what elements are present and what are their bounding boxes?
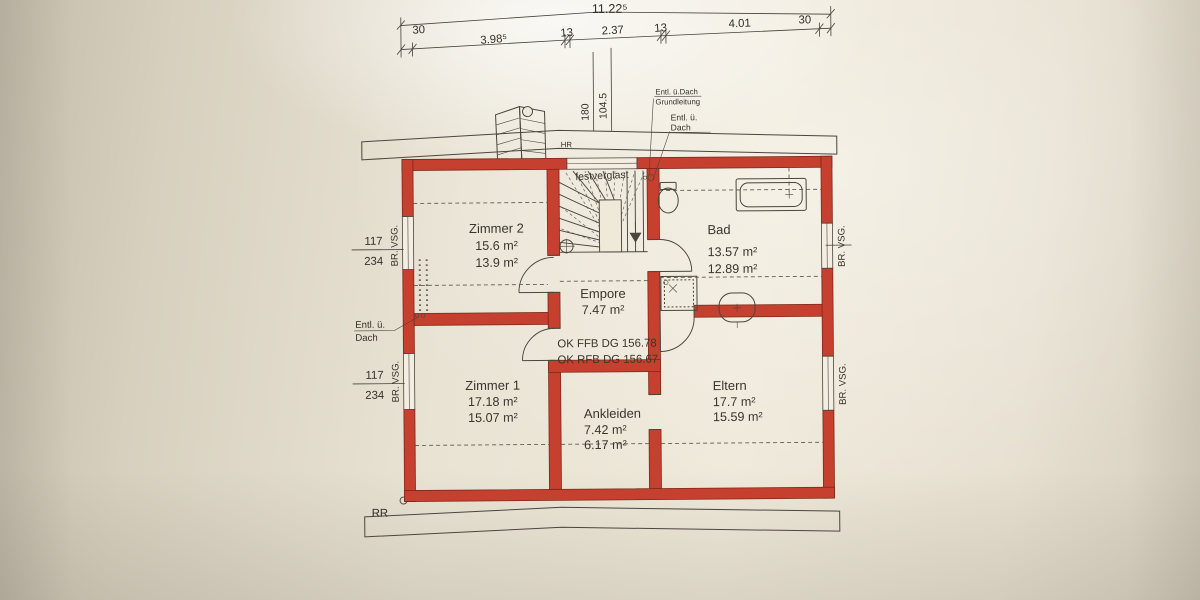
door-bad [660,239,692,271]
room-area: 17.7 m² [713,395,756,409]
win2-brvsg: BR. VSG. [390,361,401,403]
dim-seg-30-left: 30 [412,24,425,37]
level-rfb: OK RFB DG 156.67 [557,354,658,367]
room-ankleiden: Ankleiden 7.42 m² 6.17 m² [584,406,641,452]
dim-vertical-180: 180 [580,103,591,121]
room-area: 7.42 m² [584,423,627,437]
dim-seg-13a: 13 [560,27,573,40]
window-zimmer1 [403,353,414,409]
room-area: 17.18 m² [468,395,518,409]
entl-dach-top-line1: Entl. ü. [671,112,698,122]
dim-seg-13b: 13 [654,22,667,35]
room-name: Empore [580,286,626,301]
festverglast-label: festverglast [575,170,629,183]
level-ffb: OK FFB DG 156.78 [557,338,656,351]
hr-label: HR [561,140,573,149]
room-name: Eltern [713,378,747,393]
entl-dach-left-line2: Dach [355,333,377,344]
room-area: 6.17 m² [584,438,627,452]
dim-vertical-1045: 104.5 [598,93,609,119]
dim-seg-398: 3.98⁵ [480,33,508,47]
room-eltern: Eltern 17.7 m² 15.59 m² [713,378,763,424]
room-area: 13.57 m² [708,245,758,259]
rainwater-downpipe: RR [372,497,408,520]
win1-234: 234 [364,256,383,268]
rr-label: RR [372,508,389,520]
window-eltern [822,356,833,410]
dim-seg-30-right: 30 [798,14,811,26]
win2-234: 234 [365,390,384,402]
entl-grundleitung-line2: Grundleitung [655,97,700,106]
dim-seg-237: 2.37 [601,24,624,37]
door-zimmer1 [522,328,554,360]
stair-direction-arrow-icon [629,222,641,243]
room-name: Zimmer 1 [465,378,520,393]
win1-brvsg: BR. VSG. [389,225,400,267]
stair-newel [599,200,621,252]
roof-eaves-hatch-top [362,128,837,160]
win2-117: 117 [365,370,383,382]
dim-overall: 11.22⁵ [592,2,628,16]
room-empore: Empore 7.47 m² [580,286,626,317]
room-name: Bad [707,222,730,237]
room-area: 15.6 m² [475,239,518,253]
floor-plan-photo: 11.22⁵ 30 3.98⁵ 13 2.37 13 4.01 30 180 1… [0,0,1200,600]
window-zimmer2 [402,216,413,269]
door-jambs [548,239,695,430]
entl-dach-top-line2: Dach [671,122,691,132]
win1-117: 117 [364,236,382,248]
room-area: 7.47 m² [582,303,625,317]
shower-icon [661,276,697,310]
door-zimmer2 [519,257,554,292]
entl-dach-left-line1: Entl. ü. [355,320,385,331]
win4-brvsg: BR. VSG. [838,363,849,405]
stair-post-icon [559,239,575,254]
door-eltern [660,317,694,351]
room-area: 15.07 m² [468,411,518,425]
staircase: festverglast [558,170,648,254]
dimension-chain: 11.22⁵ 30 3.98⁵ 13 2.37 13 4.01 30 180 1… [397,0,836,132]
window-festverglast [567,158,637,170]
room-zimmer1: Zimmer 1 17.18 m² 15.07 m² [465,378,520,425]
room-area: 12.89 m² [708,262,758,276]
roof-eaves-hatch-bottom [365,505,840,537]
window-bad [821,223,832,268]
room-zimmer2: Zimmer 2 15.6 m² 13.9 m² [469,221,524,270]
dim-seg-401: 4.01 [728,17,751,30]
level-labels: OK FFB DG 156.78 OK RFB DG 156.67 [557,338,658,367]
room-labels: Zimmer 2 15.6 m² 13.9 m² Bad 13.57 m² 12… [464,219,763,453]
room-area: 13.9 m² [475,256,518,270]
room-name: Ankleiden [584,406,641,421]
room-bad: Bad 13.57 m² 12.89 m² [707,222,757,276]
floor-plan-drawing: 11.22⁵ 30 3.98⁵ 13 2.37 13 4.01 30 180 1… [0,0,1200,600]
room-name: Zimmer 2 [469,221,524,236]
chimney-vent-icon [522,107,532,117]
toilet-icon [658,182,678,213]
room-area: 15.59 m² [713,410,763,424]
entl-grundleitung-line1: Entl. ü.Dach [655,87,698,96]
win3-brvsg: BR. VSG. [836,225,847,267]
